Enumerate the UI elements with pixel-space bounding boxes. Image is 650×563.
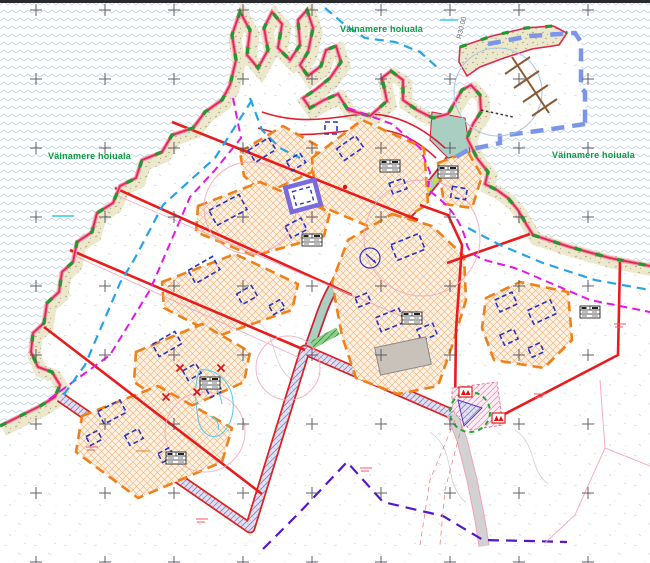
plot-info-table [200, 377, 220, 389]
protected-area-label-left: Väinamere hoiuala [48, 151, 131, 161]
plot-info-table [380, 160, 400, 172]
plot-info-table [438, 166, 458, 178]
gate-symbol-2 [492, 413, 505, 423]
plot-info-table [402, 312, 422, 324]
plot-info-table [580, 306, 600, 318]
existing-building-purple-outline [285, 180, 320, 212]
protected-area-label-right: Väinamere hoiuala [552, 150, 635, 160]
red-point-marker [343, 185, 347, 189]
plot-info-table [166, 452, 186, 464]
plan-map-drawing [0, 0, 650, 563]
plot-info-table [302, 234, 322, 246]
protected-area-label-top: Väinamere hoiuala [340, 24, 423, 34]
window-top-border [0, 0, 650, 3]
plan-map-canvas: Väinamere hoiuala Väinamere hoiuala Väin… [0, 0, 650, 563]
gate-symbol-1 [459, 387, 472, 397]
